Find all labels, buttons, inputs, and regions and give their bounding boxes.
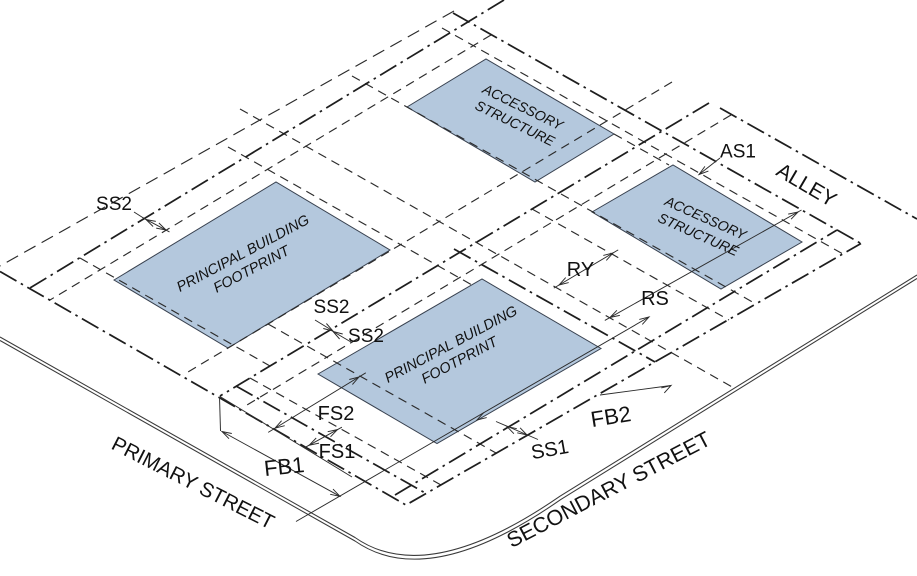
svg-text:AS1: AS1 — [720, 142, 756, 163]
svg-text:RY: RY — [567, 259, 594, 281]
svg-text:FS2: FS2 — [318, 403, 355, 425]
svg-text:RS: RS — [641, 288, 669, 310]
svg-text:SS2: SS2 — [96, 194, 132, 215]
svg-text:FS1: FS1 — [319, 441, 356, 463]
svg-text:SS2: SS2 — [348, 326, 384, 347]
svg-text:FB1: FB1 — [263, 452, 306, 481]
svg-text:SS2: SS2 — [314, 297, 350, 318]
